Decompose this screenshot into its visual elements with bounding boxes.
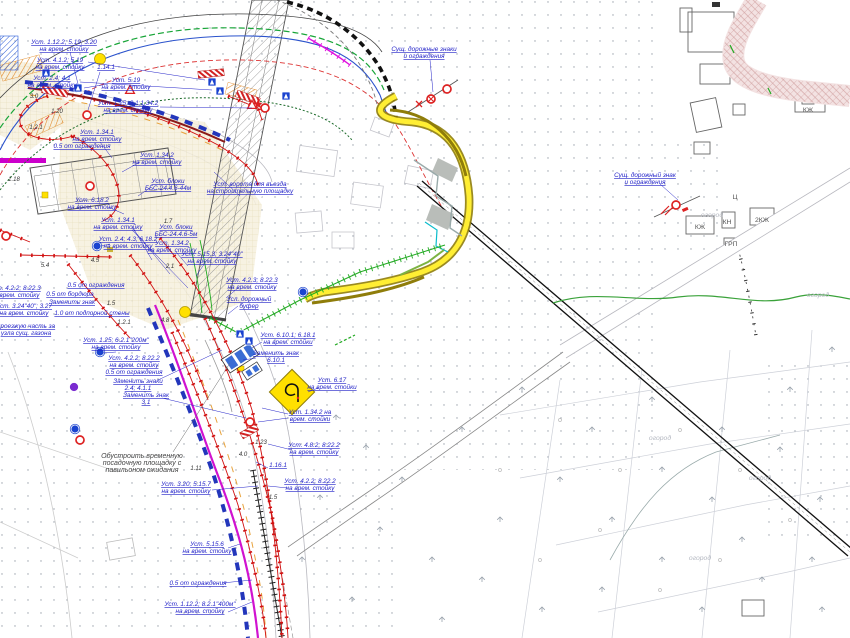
map-label: Ц <box>732 194 737 201</box>
road-sign-red-circle <box>76 436 84 444</box>
annotation-label: 0.5 от ограждения <box>169 579 227 587</box>
map-label: огород <box>807 291 829 299</box>
annotation-label: Уст. 4.2.2; 8.22.2на врем. стойку <box>283 478 336 492</box>
annotation-label: Уст. 4.1.2; 5.19на врем. стойку <box>36 57 86 71</box>
road-sign-red-circle <box>246 418 254 426</box>
annotation-label: Уст. 6.10.1; 6.18.1на врем. стойки <box>259 332 315 346</box>
annotation-label: 1.16.1 <box>269 462 287 469</box>
blue-hatch-strip <box>0 36 18 70</box>
annotation-label: Уст. 5.15.3; 3.24"40"на врем. стойку <box>180 251 243 265</box>
road-sign-red-circle <box>83 111 91 119</box>
annotation-label: Заменить знак <box>49 299 96 306</box>
map-label: КН <box>723 219 732 226</box>
road-sign-blue-square <box>236 330 244 338</box>
bush-icon <box>679 429 682 432</box>
road-sign-blue-square <box>282 92 290 100</box>
dimension-label: 2.1 <box>165 264 174 270</box>
annotation-label: 1.0 от подпорной стены <box>54 309 130 317</box>
tree-icon <box>497 517 503 522</box>
dimension-label: 1.2.1 <box>29 125 42 131</box>
dimension-label: 1.20 <box>51 109 63 115</box>
tree-icon <box>829 347 835 352</box>
yellow-marker <box>42 192 48 198</box>
note-label: Обустроить временнуюпосадочную площадку … <box>101 452 183 474</box>
magenta-bar <box>0 158 46 163</box>
tree-icon <box>439 617 445 622</box>
annotation-label: проезжую часть заузла сущ. газона <box>0 323 56 337</box>
road-sign-blue-square <box>208 78 216 86</box>
yellow-circle-marker <box>95 54 106 65</box>
annotation-label: Уст. блокиББС-24.4.6-5м <box>155 223 198 238</box>
power-pole-line <box>738 248 756 336</box>
map-label: КЖ <box>803 107 814 114</box>
annotation-label: Уст. 3.24"40"; 3.27на врем. стойку <box>0 303 52 317</box>
dimension-label: 1.18 <box>8 177 20 183</box>
tree-icon <box>719 427 725 432</box>
dimension-label: 1.5 <box>107 301 116 307</box>
bush-icon <box>739 469 742 472</box>
building-dark-1 <box>712 2 720 7</box>
annotation-label: 1.14.1 <box>97 64 115 71</box>
map-label: огород <box>701 211 723 219</box>
tree-icon <box>429 557 435 562</box>
tree-icon <box>659 557 665 562</box>
annotation-label: Уст. ворота для въездана строительную пл… <box>207 180 294 195</box>
tree-icon <box>819 607 825 612</box>
tree-icon <box>699 607 705 612</box>
annotation-label: 0.5 от ограждения <box>53 142 111 150</box>
dimension-label: 3.0 <box>30 94 39 100</box>
tree-icon <box>809 557 815 562</box>
site-plan-drawing: Уст. 1.12.2; 5.19; 3.20на врем. стойкуУс… <box>0 0 850 638</box>
annotation-label: Уст. 4.2.2; 8.22.3на врем. стойку <box>0 285 41 299</box>
road-sign-red-circle <box>672 201 680 209</box>
annotation-label: 0.5 от бордюра <box>46 290 94 298</box>
annotation-label: 0.5 от ограждения <box>67 281 125 289</box>
annotation-label: Уст. 4.2.2; 8.22.2на врем. стойку0.5 от … <box>105 355 163 376</box>
tree-icon <box>479 577 485 582</box>
map-label: ГРП <box>724 241 737 248</box>
annotation-label: Уст. 3.20; 5.15.7на врем. стойку <box>160 481 211 495</box>
map-label: огород <box>689 554 711 562</box>
dimension-label: 4.0 <box>239 452 248 458</box>
bush-icon <box>659 589 662 592</box>
tree-icon <box>539 607 545 612</box>
tree-icon <box>599 587 605 592</box>
dimension-label: 4.5 <box>91 258 100 264</box>
annotation-label: Уст. 4.8.2; 8.22.2на врем. стойку <box>287 442 340 456</box>
annotation-label: Уст. 1.12.2; 5.19; 3.20на врем. стойку <box>30 39 97 53</box>
dimension-label: 1.2.1 <box>117 320 130 326</box>
annotation-label: Уст. 1.34.2 наврем. стойки <box>288 409 332 423</box>
map-label: 2КЖ <box>755 217 770 224</box>
tree-icon <box>739 537 745 542</box>
plan-canvas: Уст. 1.12.2; 5.19; 3.20на врем. стойкуУс… <box>0 0 850 638</box>
annotation-label: Уст. 1.25; 6.2.1"200м"на врем. стойку <box>82 337 149 351</box>
dimension-label: 4.8 <box>161 318 170 324</box>
road-sign-blue-circle <box>298 287 308 297</box>
road-sign-violet-circle <box>70 383 79 392</box>
bush-icon <box>719 559 722 562</box>
bush-icon <box>599 529 602 532</box>
road-sign-blue-square <box>245 337 253 345</box>
annotation-label: Уст. 2.4; 4.3; 6.18.2на врем. стойку <box>98 236 158 250</box>
tree-icon <box>557 477 563 482</box>
tree-icon <box>609 517 615 522</box>
road-sign-blue-circle <box>70 424 80 434</box>
road-sign-red-circle <box>261 104 269 112</box>
dimension-label: 1.23 <box>255 440 267 446</box>
map-label: КЖ <box>695 224 706 231</box>
map-label: огород <box>749 474 771 482</box>
yellow-circle-marker <box>180 307 191 318</box>
road-sign-blue-square <box>216 87 224 95</box>
annotation-label: Уст. 1.25; 3.1;1.34.2на врем. стойку <box>97 100 159 114</box>
dimension-label: 5.4 <box>41 263 50 269</box>
dimension-label: 1.11 <box>190 466 201 472</box>
annotation-label: Уст. 2.4; 4.1на врем. стойку <box>28 75 78 89</box>
bush-icon <box>539 559 542 562</box>
tree-icon <box>659 467 665 472</box>
tree-icon <box>709 497 715 502</box>
road-sign-red-circle <box>86 182 94 190</box>
road-sign-red-circle <box>2 232 10 240</box>
dimension-label: 1.5 <box>269 495 278 501</box>
annotation-label: Уст. 4.2.3; 8.22.3на врем. стойку <box>225 277 278 291</box>
map-label: огород <box>649 434 671 442</box>
dot-grid-layer <box>0 0 850 638</box>
road-sign-red-circle <box>443 85 451 93</box>
dimension-label: 1.7 <box>164 219 173 225</box>
existing-road-hatched <box>730 0 850 96</box>
